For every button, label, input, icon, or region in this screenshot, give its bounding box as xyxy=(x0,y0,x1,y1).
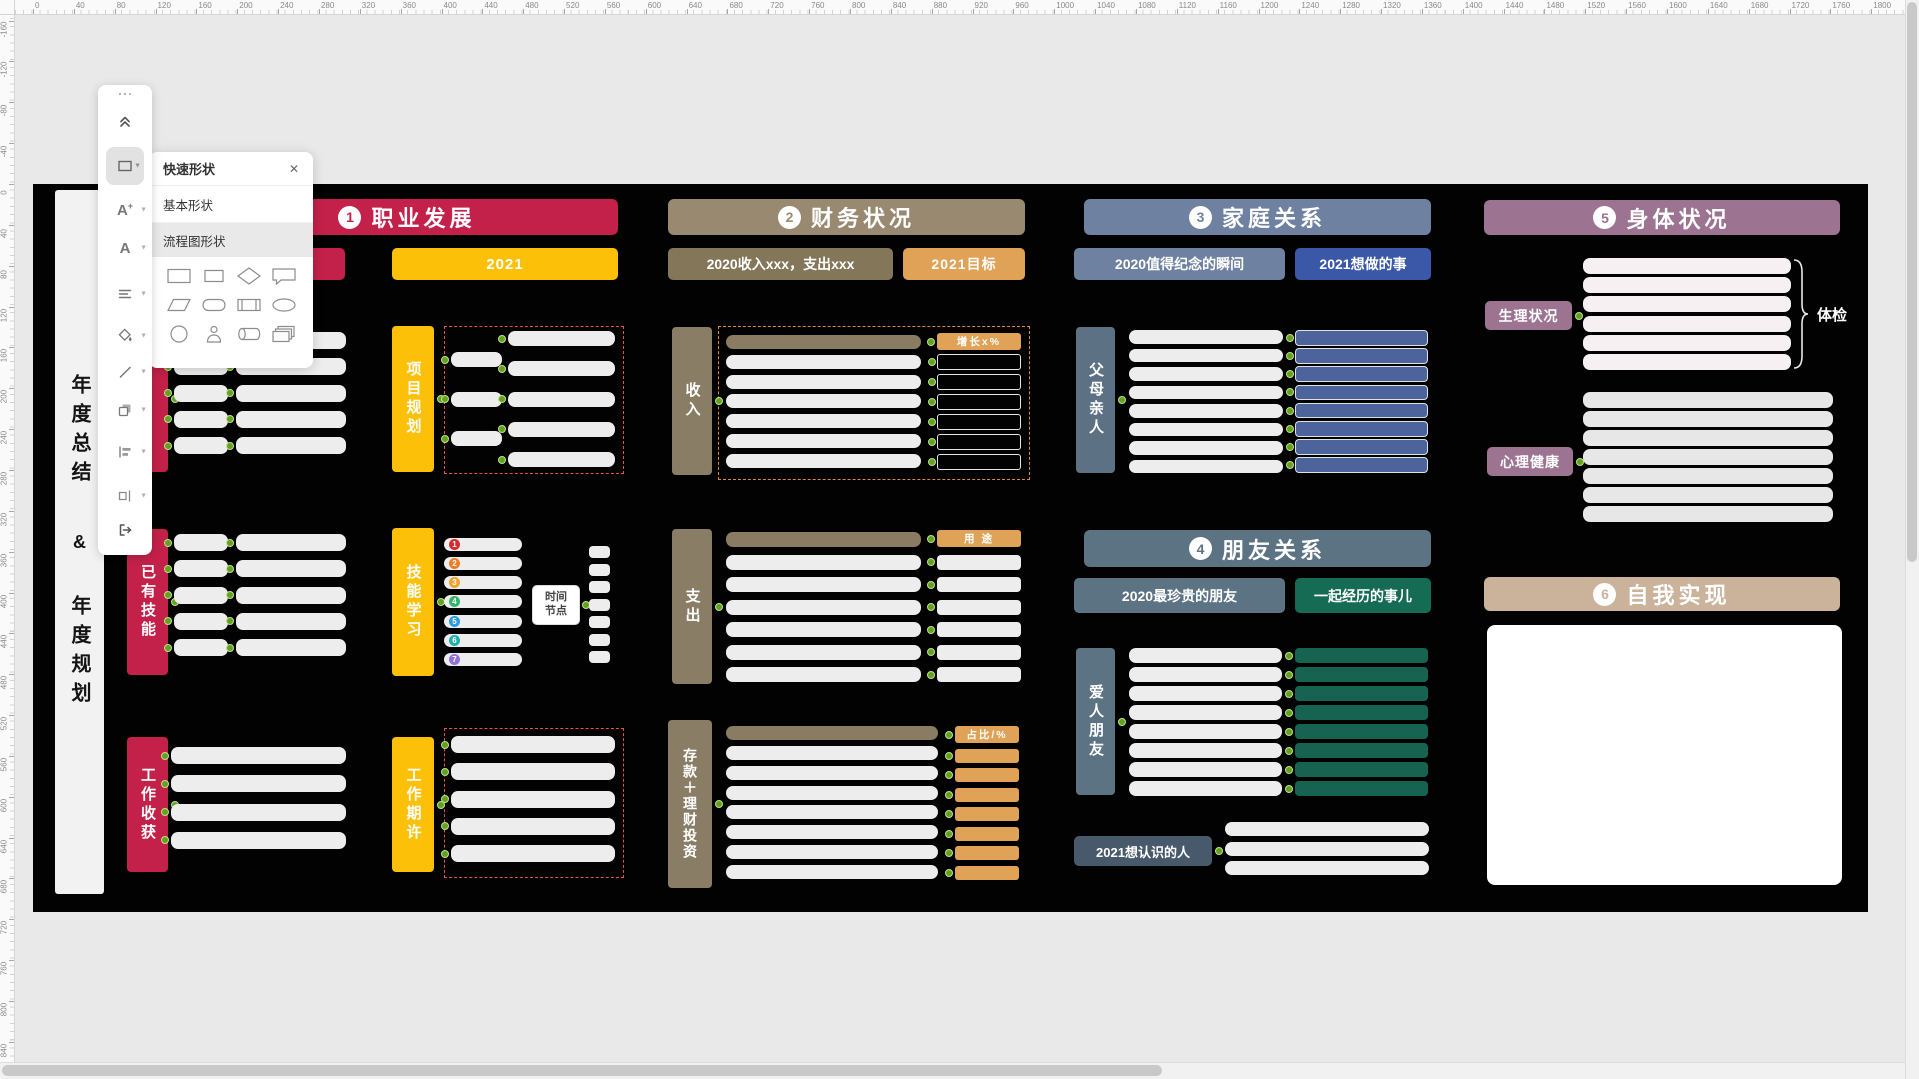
line-style-button[interactable]: ▼ xyxy=(98,359,152,385)
annual-note-shape[interactable]: 年度总结 & 年度规划 xyxy=(55,190,104,894)
ruler-label: 680 xyxy=(729,1,742,10)
section-family-header[interactable]: 3 家庭关系 xyxy=(1084,199,1431,235)
shape-row[interactable] xyxy=(1295,348,1428,364)
section-finance-number: 2 xyxy=(778,206,801,229)
shape-row[interactable] xyxy=(1129,686,1282,701)
section-self-header[interactable]: 6 自我实现 xyxy=(1484,577,1840,611)
note-line1: 年度总结 xyxy=(65,374,94,490)
shape-row[interactable] xyxy=(174,587,228,604)
ruler-label: 40 xyxy=(0,219,11,247)
shape-row[interactable] xyxy=(1129,743,1282,758)
health-physical-label[interactable]: 生理状况 xyxy=(1485,301,1572,330)
shape-row[interactable] xyxy=(726,622,921,637)
quick-shapes-title: 快速形状 xyxy=(163,159,215,178)
shape-row[interactable] xyxy=(726,434,921,448)
ruler-label: 680 xyxy=(0,873,11,901)
ruler-label: 520 xyxy=(0,710,11,738)
copy-style-button[interactable]: ▼ xyxy=(98,397,152,423)
section-family-title: 家庭关系 xyxy=(1222,201,1326,233)
ruler-label: 760 xyxy=(0,955,11,983)
career-g2-small-rows xyxy=(589,546,610,663)
app-window: 0408012016020024028032036040044048052056… xyxy=(0,0,1919,1079)
shape-row[interactable] xyxy=(937,454,1021,470)
shape-row[interactable] xyxy=(726,805,938,819)
shape-row[interactable] xyxy=(1583,258,1791,274)
ruler-label: 120 xyxy=(0,301,11,329)
section-health-header[interactable]: 5 身体状况 xyxy=(1484,200,1840,235)
cylinder-shape-icon[interactable] xyxy=(231,323,266,345)
career-g2-rows-a xyxy=(174,534,228,656)
shape-row[interactable] xyxy=(589,616,610,628)
family-parents-label[interactable]: 父母亲人 xyxy=(1076,327,1115,473)
shape-row[interactable] xyxy=(1295,403,1428,419)
shape-row[interactable] xyxy=(451,392,502,407)
shape-row[interactable] xyxy=(589,651,610,663)
shape-row[interactable] xyxy=(955,846,1019,860)
ruler-label: 880 xyxy=(934,1,947,10)
finance-2020-box[interactable]: 2020收入xxx，支出xxx xyxy=(668,248,893,280)
shape-row[interactable]: 6 xyxy=(444,634,522,647)
shape-row[interactable]: 1 xyxy=(444,538,522,551)
ruler-label: 440 xyxy=(484,1,497,10)
shape-row[interactable] xyxy=(726,645,921,660)
ellipse-shape-icon[interactable] xyxy=(266,294,301,316)
ruler-tick xyxy=(1504,9,1505,14)
shape-row[interactable] xyxy=(589,581,610,593)
ruler-label: 640 xyxy=(689,1,702,10)
section-friends-header[interactable]: 4 朋友关系 xyxy=(1084,530,1431,567)
shape-row[interactable]: 7 xyxy=(444,653,522,666)
shape-row[interactable] xyxy=(236,385,346,402)
shape-row[interactable] xyxy=(937,667,1021,682)
shape-row[interactable] xyxy=(589,599,610,611)
shape-row[interactable] xyxy=(1129,441,1283,455)
shape-row[interactable] xyxy=(171,747,346,764)
shape-row[interactable] xyxy=(726,726,938,740)
shape-row[interactable] xyxy=(726,667,921,682)
ruler-label: 1640 xyxy=(1710,1,1728,10)
shape-row[interactable] xyxy=(1295,667,1428,682)
shape-row[interactable] xyxy=(1295,686,1428,701)
tab-flowchart-shapes[interactable]: 流程图形状 xyxy=(149,223,313,257)
shape-row[interactable] xyxy=(508,452,615,467)
shape-row[interactable] xyxy=(726,600,921,615)
stadium-shape-icon[interactable] xyxy=(196,294,231,316)
numbered-badge-icon: 4 xyxy=(449,596,460,607)
health-mental-label[interactable]: 心理健康 xyxy=(1487,447,1573,476)
shape-row[interactable] xyxy=(726,766,938,780)
ruler-tick xyxy=(768,9,769,14)
ruler-label: 320 xyxy=(0,505,11,533)
distribute-button[interactable]: ▼ xyxy=(98,483,152,509)
callout-shape-icon[interactable] xyxy=(266,265,301,287)
shape-row[interactable] xyxy=(1129,762,1282,777)
shape-row[interactable] xyxy=(174,613,228,630)
finance-income-rows xyxy=(726,335,921,468)
family-2021-box[interactable]: 2021想做的事 xyxy=(1295,248,1431,280)
numbered-badge-icon: 5 xyxy=(449,616,460,627)
shape-row[interactable]: 2 xyxy=(444,557,522,570)
ruler-label: -40 xyxy=(0,138,11,166)
shape-row[interactable] xyxy=(1583,411,1833,427)
shape-row[interactable] xyxy=(955,768,1019,782)
distribute-icon xyxy=(117,488,133,504)
shape-row[interactable] xyxy=(937,374,1021,390)
shape-row[interactable] xyxy=(726,746,938,760)
shape-row[interactable] xyxy=(955,827,1019,841)
shape-row[interactable] xyxy=(171,804,346,821)
shape-row[interactable] xyxy=(937,555,1021,570)
shape-row[interactable] xyxy=(236,587,346,604)
ruler-tick xyxy=(1381,9,1382,14)
ruler-tick xyxy=(1095,9,1096,14)
finance-expense-tag-text: 用 途 xyxy=(964,531,994,546)
shape-row[interactable] xyxy=(1295,762,1428,777)
family-2020-label: 2020值得纪念的瞬间 xyxy=(1115,254,1244,274)
ruler-tick xyxy=(1585,9,1586,14)
shape-row[interactable] xyxy=(937,645,1021,660)
shape-row[interactable] xyxy=(726,454,921,468)
shape-row[interactable] xyxy=(1129,349,1283,363)
shape-row[interactable] xyxy=(1129,330,1283,344)
shape-row[interactable]: 3 xyxy=(444,576,522,589)
ruler-label: 200 xyxy=(0,383,11,411)
ruler-tick xyxy=(74,9,75,14)
career-g2-left-text: 已有技能 xyxy=(137,564,158,640)
shape-row[interactable] xyxy=(937,434,1021,450)
chevron-down-icon: ▼ xyxy=(134,163,141,170)
horizontal-scrollbar-thumb[interactable] xyxy=(2,1065,1162,1076)
ruler-tick xyxy=(278,9,279,14)
ruler-tick xyxy=(973,9,974,14)
note-ampersand: & xyxy=(73,532,86,553)
finance-expense-label[interactable]: 支出 xyxy=(672,529,712,684)
section-finance-header[interactable]: 2 财务状况 xyxy=(668,199,1025,235)
shape-row[interactable] xyxy=(726,414,921,428)
shape-row[interactable] xyxy=(726,375,921,389)
shape-row[interactable] xyxy=(1129,705,1282,720)
finance-expense-rows xyxy=(726,532,921,682)
section-self-title: 自我实现 xyxy=(1626,578,1730,610)
ruler-tick xyxy=(850,9,851,14)
time-node-box[interactable]: 时间节点 xyxy=(532,585,580,625)
shape-row[interactable] xyxy=(236,534,346,551)
ruler-tick xyxy=(687,9,688,14)
fill-icon xyxy=(116,327,134,345)
ruler-tick xyxy=(1626,9,1627,14)
shape-row[interactable] xyxy=(726,532,921,547)
friends-2021-box[interactable]: 一起经历的事儿 xyxy=(1295,578,1431,613)
shape-row[interactable] xyxy=(955,749,1019,763)
ruler-label: 80 xyxy=(117,1,126,10)
shape-row[interactable] xyxy=(726,786,938,800)
ruler-label: 600 xyxy=(0,791,11,819)
finance-income-label[interactable]: 收入 xyxy=(672,327,712,475)
shape-row[interactable] xyxy=(1295,366,1428,382)
ruler-tick xyxy=(1708,9,1709,14)
shape-row[interactable] xyxy=(726,555,921,570)
shape-row[interactable] xyxy=(174,411,228,428)
ruler-label: 1120 xyxy=(1179,1,1196,10)
shape-row[interactable] xyxy=(1583,468,1833,484)
shape-row[interactable] xyxy=(1129,667,1282,682)
more-handle-icon xyxy=(116,91,134,97)
ruler-label: 440 xyxy=(0,628,11,656)
shape-row[interactable] xyxy=(937,577,1021,592)
shape-row[interactable] xyxy=(1129,404,1283,418)
finance-savings-label[interactable]: 存款＋理财投资 xyxy=(668,720,712,888)
ruler-tick xyxy=(1054,9,1055,14)
shape-row[interactable] xyxy=(1583,449,1833,465)
shape-row[interactable] xyxy=(1295,421,1428,437)
shape-row[interactable] xyxy=(1129,648,1282,663)
chevron-down-icon: ▼ xyxy=(140,407,147,414)
insert-text-icon: A+ xyxy=(117,202,133,218)
export-button[interactable] xyxy=(98,517,152,543)
shape-row[interactable] xyxy=(451,431,502,446)
ruler-left: -160-120-80-4004080120160200240280320360… xyxy=(0,14,15,1062)
shape-row[interactable] xyxy=(1295,330,1428,346)
shape-row[interactable] xyxy=(508,331,615,346)
shape-row[interactable] xyxy=(937,354,1021,370)
brace-bracket xyxy=(1791,258,1811,370)
shape-row[interactable] xyxy=(937,414,1021,430)
ruler-label: 360 xyxy=(403,1,416,10)
shape-row[interactable] xyxy=(236,639,346,656)
shape-row[interactable] xyxy=(236,437,346,454)
shape-row[interactable] xyxy=(174,437,228,454)
shape-row[interactable] xyxy=(1225,822,1429,836)
shape-row[interactable] xyxy=(1583,354,1791,370)
rectangle2-shape-icon[interactable] xyxy=(196,265,231,287)
shape-row[interactable] xyxy=(508,361,615,376)
section-friends-title: 朋友关系 xyxy=(1222,533,1326,565)
ruler-tick xyxy=(1667,9,1668,14)
ruler-label: 920 xyxy=(975,1,988,10)
section-health-title: 身体状况 xyxy=(1626,202,1730,234)
self-content-box[interactable] xyxy=(1487,625,1842,885)
shape-row[interactable] xyxy=(174,639,228,656)
shape-row[interactable] xyxy=(174,534,228,551)
shape-row[interactable] xyxy=(1295,457,1428,473)
ruler-label: 1360 xyxy=(1424,1,1442,10)
ruler-label: 800 xyxy=(852,1,865,10)
finance-income-tag[interactable]: 增长x% xyxy=(937,333,1021,350)
shape-row[interactable] xyxy=(1583,335,1791,351)
ruler-label: 1600 xyxy=(1669,1,1687,10)
family-2021-label: 2021想做的事 xyxy=(1319,254,1406,274)
ruler-tick xyxy=(1790,9,1791,14)
shape-row[interactable] xyxy=(1295,743,1428,758)
stack-shape-icon[interactable] xyxy=(266,323,301,345)
ruler-label: 1000 xyxy=(1056,1,1074,10)
section-career-number: 1 xyxy=(338,206,361,229)
rectangle-shape-icon[interactable] xyxy=(161,265,196,287)
shape-row[interactable] xyxy=(726,335,921,349)
family-blue-rows xyxy=(1295,330,1428,473)
friends-2020-box[interactable]: 2020最珍贵的朋友 xyxy=(1074,578,1285,613)
shape-row[interactable] xyxy=(955,788,1019,802)
shape-row[interactable] xyxy=(451,352,502,367)
shape-row[interactable] xyxy=(726,355,921,369)
shape-row[interactable] xyxy=(1295,439,1428,455)
shape-row[interactable] xyxy=(1129,724,1282,739)
shape-row[interactable] xyxy=(451,818,615,835)
shape-row[interactable] xyxy=(1295,385,1428,401)
shape-row[interactable] xyxy=(1129,386,1283,400)
ruler-label: 840 xyxy=(0,1036,11,1064)
ruler-label: -120 xyxy=(0,56,11,84)
ruler-label: 40 xyxy=(76,1,85,10)
actor-shape-icon[interactable] xyxy=(196,323,231,345)
insert-text-button[interactable]: A+ ▼ xyxy=(98,197,152,223)
shape-row[interactable] xyxy=(171,832,346,849)
shape-row[interactable] xyxy=(1129,367,1283,381)
ruler-tick xyxy=(564,9,565,14)
ruler-tick xyxy=(401,9,402,14)
career-g3-left-text: 工作收获 xyxy=(137,767,158,843)
align-icon xyxy=(117,444,133,460)
align-button[interactable]: ▼ xyxy=(98,439,152,465)
toolbar-drag-handle[interactable] xyxy=(98,87,152,101)
shape-row[interactable] xyxy=(451,736,615,753)
tab-basic-shapes[interactable]: 基本形状 xyxy=(149,186,313,223)
finance-expense-tag[interactable]: 用 途 xyxy=(937,530,1021,547)
ruler-label: 160 xyxy=(198,1,211,10)
shape-row[interactable] xyxy=(955,807,1019,821)
shape-row[interactable] xyxy=(1129,460,1283,474)
shape-row[interactable] xyxy=(1225,842,1429,856)
shape-row[interactable] xyxy=(1583,296,1791,312)
shape-row[interactable]: 5 xyxy=(444,615,522,628)
career-g1-rows-rb xyxy=(508,331,615,467)
shape-row[interactable] xyxy=(1583,506,1833,522)
shape-row[interactable] xyxy=(589,634,610,646)
shape-row[interactable] xyxy=(726,845,938,859)
shape-row[interactable] xyxy=(589,546,610,558)
ruler-tick xyxy=(1544,9,1545,14)
shape-row[interactable] xyxy=(174,385,228,402)
shape-row[interactable] xyxy=(1225,861,1429,875)
shape-row[interactable] xyxy=(937,600,1021,615)
shape-row[interactable] xyxy=(726,577,921,592)
shape-row[interactable] xyxy=(1295,648,1428,663)
diamond-shape-icon[interactable] xyxy=(231,265,266,287)
ruler-tick xyxy=(1136,9,1137,14)
shape-row[interactable] xyxy=(236,411,346,428)
shape-row[interactable] xyxy=(955,866,1019,880)
career-g1-rows-ra xyxy=(451,352,502,446)
shape-row[interactable] xyxy=(1295,724,1428,739)
shape-row[interactable]: 4 xyxy=(444,595,522,608)
shape-row[interactable] xyxy=(171,775,346,792)
ruler-label: 0 xyxy=(0,179,11,207)
shape-grid xyxy=(149,257,313,353)
ruler-label: 960 xyxy=(1015,1,1028,10)
ruler-label: 1400 xyxy=(1465,1,1483,10)
font-button[interactable]: A ▼ xyxy=(98,235,152,261)
section-family-number: 3 xyxy=(1189,206,1212,229)
chevron-down-icon: ▼ xyxy=(140,291,147,298)
shape-row[interactable] xyxy=(726,825,938,839)
predefined-process-shape-icon[interactable] xyxy=(231,294,266,316)
note-line2: 年度规划 xyxy=(65,595,94,711)
career-skill-badge-rows: 1234567 xyxy=(444,538,522,666)
shape-row[interactable] xyxy=(451,791,615,808)
finance-savings-rows xyxy=(726,726,938,879)
text-align-button[interactable]: ▼ xyxy=(98,281,152,307)
career-g3-rows-right xyxy=(451,736,615,862)
friends-lover-label[interactable]: 爱人朋友 xyxy=(1076,648,1115,795)
family-2020-box[interactable]: 2020值得纪念的瞬间 xyxy=(1074,248,1285,280)
chevron-down-icon: ▼ xyxy=(140,493,147,500)
shape-row[interactable] xyxy=(1583,430,1833,446)
parallelogram-shape-icon[interactable] xyxy=(161,294,196,316)
career-g1-right-text: 项目规划 xyxy=(403,361,424,437)
ruler-label: 1160 xyxy=(1220,1,1237,10)
shape-row[interactable] xyxy=(589,564,610,576)
shape-row[interactable] xyxy=(1295,705,1428,720)
shape-row[interactable] xyxy=(451,845,615,862)
shape-row[interactable] xyxy=(726,865,938,879)
ruler-label: 1080 xyxy=(1138,1,1156,10)
shape-row[interactable] xyxy=(1583,277,1791,293)
shape-row[interactable] xyxy=(1583,316,1791,332)
health-mental-text: 心理健康 xyxy=(1500,452,1560,472)
numbered-badge-icon: 6 xyxy=(449,635,460,646)
shape-row[interactable] xyxy=(726,394,921,408)
ruler-label: 1480 xyxy=(1546,1,1564,10)
shape-row[interactable] xyxy=(1129,423,1283,437)
finance-2021-box[interactable]: 2021目标 xyxy=(903,248,1025,280)
close-icon[interactable]: ✕ xyxy=(289,162,299,176)
finance-savings-tag[interactable]: 占比/% xyxy=(955,726,1019,743)
finance-savings-tag-text: 占比/% xyxy=(966,727,1007,742)
shape-row[interactable] xyxy=(1295,781,1428,796)
shape-row[interactable] xyxy=(1583,487,1833,503)
ruler-tick xyxy=(1177,9,1178,14)
vertical-scrollbar-thumb[interactable] xyxy=(1907,2,1917,562)
shape-row[interactable] xyxy=(508,422,615,437)
shape-row[interactable] xyxy=(937,394,1021,410)
ruler-label: 200 xyxy=(239,1,252,10)
career-g3-right-label[interactable]: 工作期许 xyxy=(392,737,434,872)
circle-shape-icon[interactable] xyxy=(161,323,196,345)
shape-row[interactable] xyxy=(451,763,615,780)
collapse-button[interactable] xyxy=(98,107,152,133)
section-friends-number: 4 xyxy=(1189,537,1212,560)
career-g2-right-label[interactable]: 技能学习 xyxy=(392,528,434,676)
career-g1-right-label[interactable]: 项目规划 xyxy=(392,326,434,472)
shape-row[interactable] xyxy=(236,560,346,577)
shape-row[interactable] xyxy=(1129,781,1282,796)
ruler-label: 720 xyxy=(770,1,783,10)
shape-row[interactable] xyxy=(174,560,228,577)
time-node-label: 时间节点 xyxy=(543,591,569,619)
friends-2020-label: 2020最珍贵的朋友 xyxy=(1122,586,1237,606)
ruler-tick xyxy=(646,9,647,14)
ruler-tick xyxy=(442,9,443,14)
shape-tool-button[interactable]: ▼ xyxy=(106,147,144,185)
career-2021-box[interactable]: 2021 xyxy=(392,248,618,280)
ruler-tick xyxy=(1259,9,1260,14)
shape-row[interactable] xyxy=(1583,392,1833,408)
friends-meet-box[interactable]: 2021想认识的人 xyxy=(1074,836,1212,866)
shape-row[interactable] xyxy=(508,392,615,407)
fill-color-button[interactable]: ▼ xyxy=(98,323,152,349)
shape-row[interactable] xyxy=(937,622,1021,637)
shape-row[interactable] xyxy=(236,613,346,630)
